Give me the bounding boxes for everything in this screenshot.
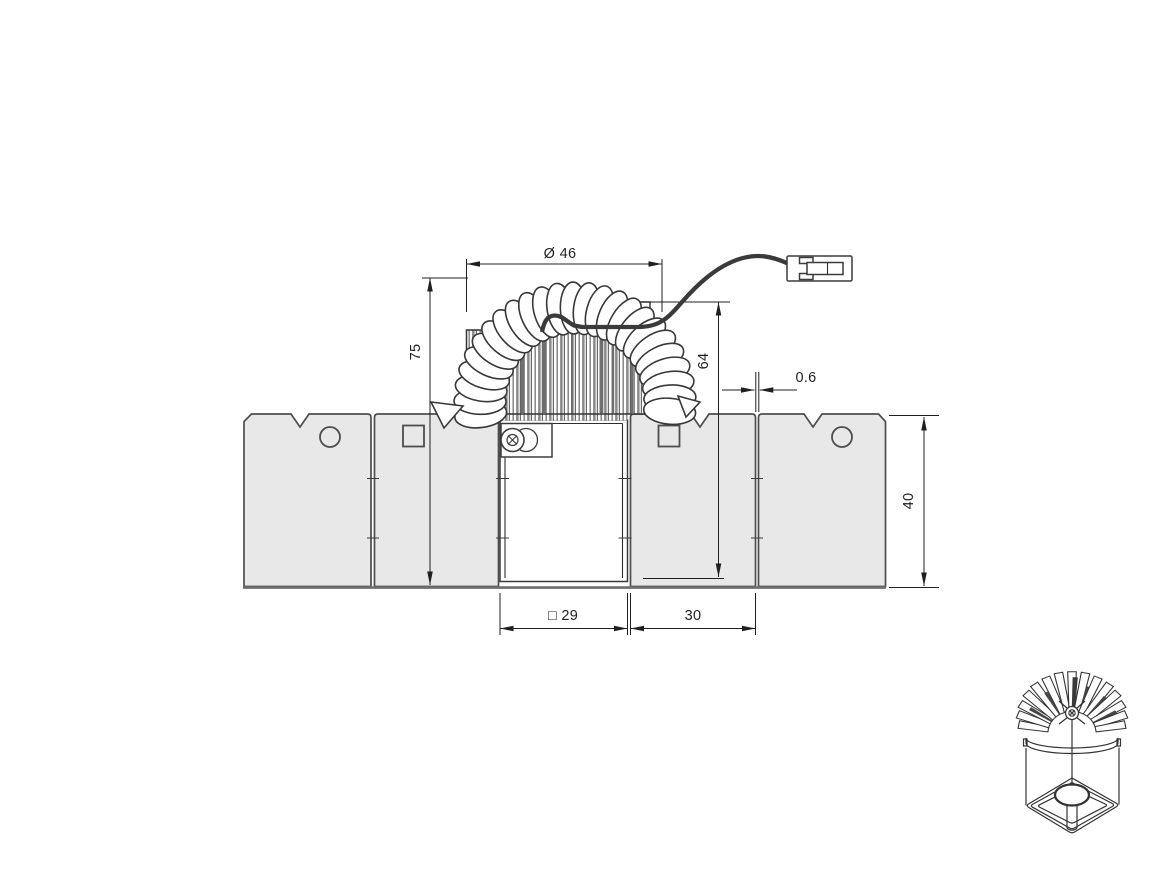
adjustment-screw — [501, 424, 552, 458]
dimension-30: 30 — [631, 608, 756, 631]
drawing-canvas: Ø 46 75 64 0.6 40 □ — [0, 0, 1170, 878]
isometric-view — [1016, 672, 1127, 833]
dim-label-panel-thickness: 40 — [901, 493, 917, 510]
dim-label-panel-gap: 0.6 — [795, 370, 816, 386]
iso-body — [1026, 720, 1119, 833]
dim-label-diameter: Ø 46 — [544, 246, 577, 262]
dimension-dia-46: Ø 46 — [467, 246, 663, 267]
dim-label-recessed-height: 64 — [696, 353, 712, 370]
technical-drawing-page: Ø 46 75 64 0.6 40 □ — [0, 0, 1170, 878]
panel-a — [244, 414, 371, 587]
dim-label-cutout-square: □ 29 — [548, 608, 578, 624]
panel-c — [631, 414, 756, 587]
dim-label-panel-width: 30 — [685, 608, 702, 624]
dimension-0-6: 0.6 — [722, 370, 817, 412]
panel-b — [375, 414, 499, 587]
dimension-40: 40 — [889, 416, 939, 588]
cable-connector — [787, 256, 852, 281]
panel-d — [759, 414, 886, 587]
dim-label-overall-height: 75 — [408, 344, 424, 361]
